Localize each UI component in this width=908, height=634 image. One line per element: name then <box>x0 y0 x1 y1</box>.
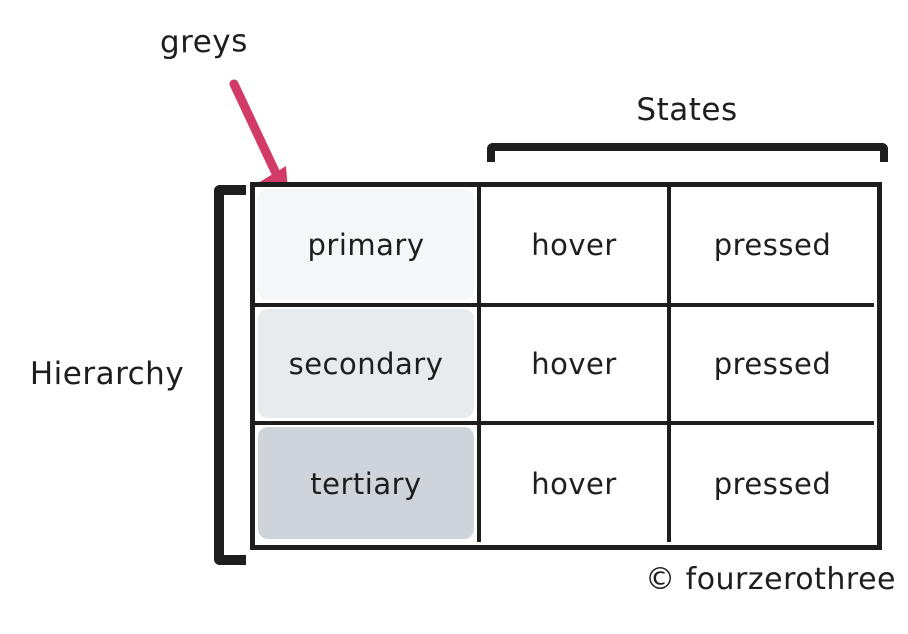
states-bracket <box>487 143 888 162</box>
state-label: hover <box>531 228 617 262</box>
row-label-tertiary: tertiary <box>310 467 421 501</box>
cell-tertiary-pressed: pressed <box>671 425 874 542</box>
states-group-label: States <box>487 92 887 128</box>
arrow-shaft <box>234 84 280 182</box>
state-label: pressed <box>714 467 832 501</box>
credit-text: © fourzerothree <box>645 562 896 597</box>
cell-tertiary-hover: hover <box>481 425 671 542</box>
cell-secondary: secondary <box>255 307 481 425</box>
greys-annotation-label: greys <box>160 23 248 61</box>
hierarchy-group-label: Hierarchy <box>8 356 206 392</box>
cell-primary-hover: hover <box>481 187 671 307</box>
state-label: hover <box>531 467 617 501</box>
state-label: hover <box>531 347 617 381</box>
cell-secondary-pressed: pressed <box>671 307 874 425</box>
hierarchy-states-matrix: primary hover pressed secondary hover pr… <box>250 182 882 550</box>
hierarchy-bracket <box>214 185 246 565</box>
cell-secondary-hover: hover <box>481 307 671 425</box>
row-label-primary: primary <box>308 228 425 262</box>
cell-primary: primary <box>255 187 481 307</box>
row-label-secondary: secondary <box>289 347 444 381</box>
diagram-canvas: greys States Hierarchy primary hover pre… <box>0 0 908 634</box>
cell-tertiary: tertiary <box>255 425 481 542</box>
state-label: pressed <box>714 228 832 262</box>
cell-primary-pressed: pressed <box>671 187 874 307</box>
state-label: pressed <box>714 347 832 381</box>
